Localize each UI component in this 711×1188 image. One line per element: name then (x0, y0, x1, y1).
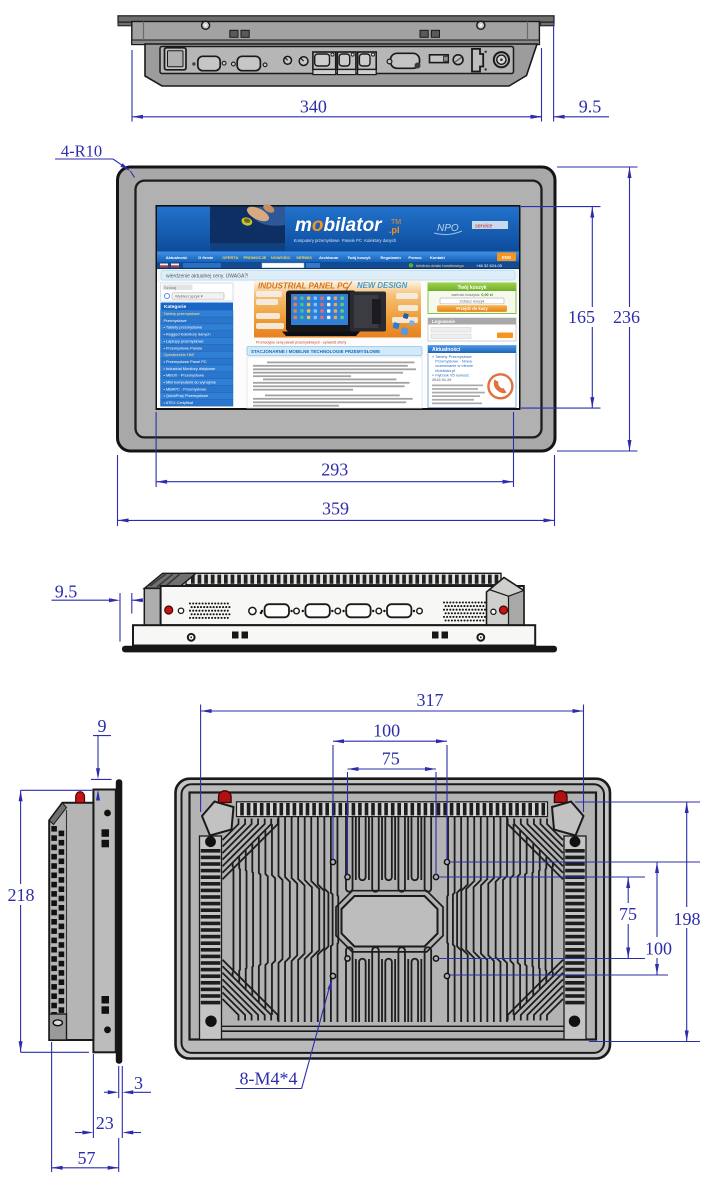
svg-text:75: 75 (382, 749, 400, 769)
svg-text:Pomoc: Pomoc (408, 255, 422, 260)
svg-text:• Tablety przemysłowe: • Tablety przemysłowe (164, 325, 202, 330)
svg-text:+48 32 624-05: +48 32 624-05 (476, 263, 503, 268)
svg-text:• Mini komputerki do wynajmie: • Mini komputerki do wynajmie (164, 380, 216, 385)
svg-text:9.5: 9.5 (55, 582, 78, 602)
svg-text:Archiwum: Archiwum (319, 255, 339, 260)
svg-text:PROMOCJE: PROMOCJE (243, 255, 266, 260)
svg-text:Szukaj: Szukaj (164, 285, 176, 290)
svg-text:Wybierz język ▾: Wybierz język ▾ (175, 294, 203, 299)
svg-text:359: 359 (322, 499, 349, 519)
svg-text:INDUSTRIAL PANEL PC: INDUSTRIAL PANEL PC (258, 282, 348, 291)
svg-text:Kontakt: Kontakt (430, 255, 446, 260)
svg-text:2022.01.20: 2022.01.20 (432, 377, 451, 382)
svg-text:Komputery przemysłowe Panele: Komputery przemysłowe Panele PC Kolektor… (294, 238, 397, 243)
svg-text:165: 165 (568, 307, 595, 327)
svg-text:Kategorie: Kategorie (164, 304, 186, 310)
svg-text:Aktualność: Aktualność (166, 255, 188, 260)
svg-text:• Przemysłowe Panel PC: • Przemysłowe Panel PC (164, 359, 207, 364)
svg-text:SERWIS: SERWIS (296, 255, 312, 260)
svg-text:340: 340 (300, 97, 327, 117)
svg-text:mobilator: mobilator (295, 215, 383, 236)
svg-text:8-M4*4: 8-M4*4 (240, 1069, 298, 1089)
svg-text:OFERTA: OFERTA (222, 255, 238, 260)
svg-text:infolinia działu handlowego: infolinia działu handlowego (416, 263, 465, 268)
svg-text:Twój koszyk: Twój koszyk (457, 285, 486, 291)
svg-text:NOWOŚCI: NOWOŚCI (271, 255, 291, 260)
svg-text:9.5: 9.5 (579, 97, 602, 117)
svg-text:Przemysłowe: Przemysłowe (164, 318, 187, 323)
svg-text:wartość koszyka: 0,00 zł: wartość koszyka: 0,00 zł (451, 293, 493, 297)
svg-text:Twój koszyk: Twój koszyk (347, 255, 371, 260)
svg-text:Regulamin: Regulamin (380, 255, 401, 260)
svg-text:9: 9 (98, 716, 107, 736)
svg-text:Aktualności: Aktualności (432, 347, 461, 353)
svg-text:• ATEX Certyfikat: • ATEX Certyfikat (164, 400, 195, 405)
svg-text:• Industrial Monitory dotykowe: • Industrial Monitory dotykowe (164, 366, 216, 371)
svg-text:Logowanie: Logowanie (432, 319, 455, 324)
svg-text:• Rugged Kolektory danych: • Rugged Kolektory danych (164, 332, 211, 337)
svg-text:293: 293 (321, 460, 348, 480)
svg-text:O firmie: O firmie (198, 255, 214, 260)
svg-text:Tablety przemysłowe: Tablety przemysłowe (164, 311, 200, 316)
svg-text:Operatorskie HMI: Operatorskie HMI (164, 352, 195, 357)
svg-text:100: 100 (645, 939, 672, 959)
svg-text:service: service (475, 224, 492, 230)
svg-text:57: 57 (78, 1148, 96, 1168)
svg-text:• Przemysłowe Panele: • Przemysłowe Panele (164, 345, 203, 350)
svg-text:198: 198 (674, 909, 701, 929)
svg-text:Promocyjne ceny paneli przemys: Promocyjne ceny paneli przemysłowych - s… (256, 341, 346, 345)
svg-text:236: 236 (613, 307, 640, 327)
svg-text:23: 23 (96, 1113, 114, 1133)
svg-text:Przejdź do kasy: Przejdź do kasy (456, 306, 488, 311)
svg-text:.pl: .pl (389, 225, 400, 235)
svg-text:• QuickPray Przemysłowe: • QuickPray Przemysłowe (164, 393, 209, 398)
svg-text:NPO: NPO (437, 223, 459, 234)
svg-text:wierdzenie aktualnej ceny. UWA: wierdzenie aktualnej ceny. UWAGA?! (166, 273, 249, 279)
svg-text:317: 317 (417, 690, 444, 710)
svg-text:100: 100 (373, 721, 400, 741)
svg-text:75: 75 (619, 904, 637, 924)
svg-text:NEW DESIGN: NEW DESIGN (357, 281, 408, 290)
svg-text:4-R10: 4-R10 (61, 142, 102, 161)
svg-text:Zobacz koszyk: Zobacz koszyk (459, 299, 484, 303)
svg-text:218: 218 (8, 885, 35, 905)
svg-text:• Laptopy przemysłowe: • Laptopy przemysłowe (164, 338, 204, 343)
svg-text:3: 3 (134, 1073, 143, 1093)
svg-text:STACJONARNE I MOBILNE TECHNOLO: STACJONARNE I MOBILNE TECHNOLOGIE PRZEMY… (251, 349, 380, 354)
svg-text:• MBOX - Przemysłowe: • MBOX - Przemysłowe (164, 373, 205, 378)
svg-text:ENG: ENG (502, 255, 512, 260)
svg-text:• MBAPC - Przemysłowe: • MBAPC - Przemysłowe (164, 386, 207, 391)
